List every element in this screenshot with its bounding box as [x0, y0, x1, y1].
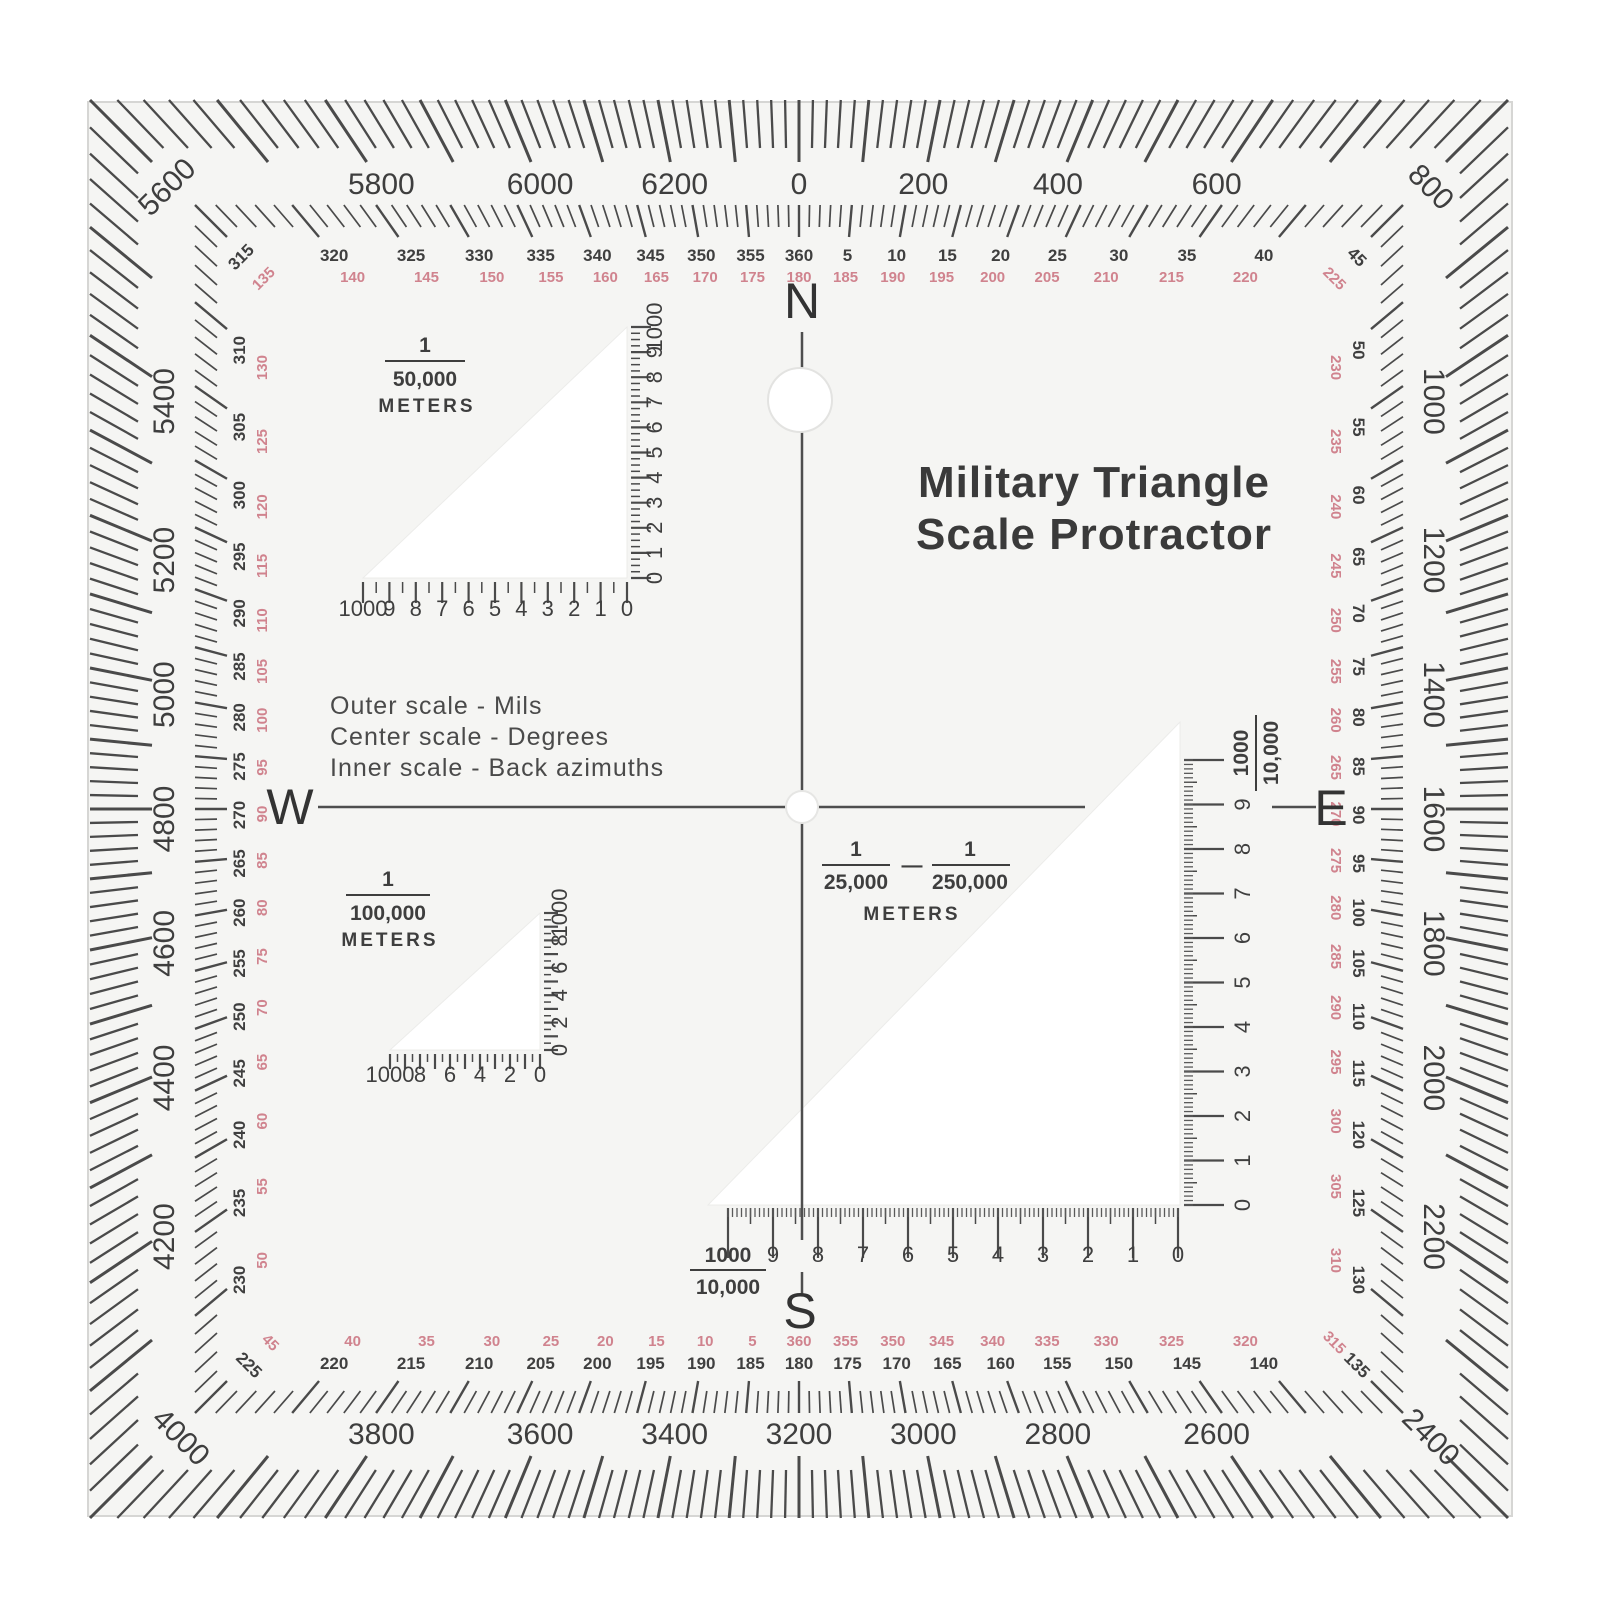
degree-value-label: 340: [583, 246, 611, 265]
degree-value-label: 50: [1349, 341, 1368, 360]
degree-value-label: 275: [230, 752, 249, 780]
svg-text:METERS: METERS: [863, 904, 960, 925]
legend-inner-scale: Inner scale - Back azimuths: [330, 754, 664, 782]
degree-value-label: 65: [1349, 547, 1368, 566]
ruler-value-label: 3: [1230, 1065, 1255, 1077]
degree-tick: [830, 1391, 831, 1413]
hanging-hole: [768, 368, 832, 432]
svg-text:1: 1: [964, 838, 976, 861]
ruler-value-label: 6: [902, 1242, 914, 1267]
ruler-value-label: 4: [547, 989, 572, 1001]
mils-tick: [812, 100, 813, 148]
back-azimuth-value-label: 205: [1035, 269, 1060, 286]
back-azimuth-value-label: 285: [1327, 944, 1344, 969]
mils-value-label: 1600: [1417, 786, 1450, 853]
degree-value-label: 230: [230, 1266, 249, 1294]
back-azimuth-value-label: 280: [1327, 895, 1344, 920]
back-azimuth-value-label: 165: [644, 269, 669, 286]
back-azimuth-value-label: 255: [1327, 659, 1344, 684]
degree-value-label: 95: [1349, 854, 1368, 873]
ruler-value-label: 9: [767, 1242, 779, 1267]
svg-text:METERS: METERS: [341, 930, 438, 951]
degree-value-label: 170: [882, 1354, 910, 1373]
back-azimuth-value-label: 195: [929, 269, 954, 286]
degree-value-label: 160: [986, 1354, 1014, 1373]
back-azimuth-value-label: 215: [1159, 269, 1184, 286]
fraction-separator: —: [902, 854, 923, 877]
back-azimuth-value-label: 25: [543, 1333, 560, 1350]
svg-text:1000: 1000: [1230, 730, 1253, 777]
back-azimuth-value-label: 60: [254, 1113, 271, 1130]
back-azimuth-value-label: 305: [1327, 1174, 1344, 1199]
protractor-product-photo: 0200400600800100012001400160018002000220…: [0, 0, 1600, 1600]
degree-value-label: 175: [833, 1354, 861, 1373]
ruler-value-label: 0: [1172, 1242, 1184, 1267]
degree-value-label: 40: [1254, 246, 1273, 265]
ruler-value-label: 9: [1230, 798, 1255, 810]
ruler-value-label: 7: [1230, 887, 1255, 899]
back-azimuth-value-label: 335: [1035, 1333, 1060, 1350]
mils-value-label: 5400: [148, 368, 181, 435]
degree-value-label: 245: [230, 1059, 249, 1087]
back-azimuth-value-label: 35: [418, 1333, 435, 1350]
ruler-value-label: 5: [489, 596, 501, 621]
ruler-value-label: 4: [642, 471, 667, 483]
degree-value-label: 270: [230, 801, 249, 829]
mils-value-label: 4600: [148, 910, 181, 977]
ruler-value-label: 2: [504, 1062, 516, 1087]
mils-value-label: 5000: [148, 661, 181, 728]
ruler-value-label: 1000: [642, 303, 667, 352]
mils-value-label: 4200: [148, 1203, 181, 1270]
degree-value-label: 15: [938, 246, 957, 265]
degree-value-label: 115: [1349, 1060, 1368, 1087]
back-azimuth-value-label: 155: [538, 269, 563, 286]
degree-tick: [195, 840, 217, 841]
ruler-value-label: 2: [547, 1016, 572, 1028]
mils-tick: [785, 100, 786, 148]
ruler-value-label: 1000: [366, 1062, 415, 1087]
mils-value-label: 1200: [1417, 527, 1450, 594]
back-azimuth-value-label: 210: [1094, 269, 1119, 286]
ruler-value-label: 7: [642, 396, 667, 408]
mils-value-label: 3800: [348, 1418, 415, 1451]
back-azimuth-value-label: 325: [1159, 1333, 1184, 1350]
svg-text:1: 1: [382, 868, 394, 891]
ruler-value-label: 4: [992, 1242, 1004, 1267]
ruler-value-label: 9: [383, 596, 395, 621]
mils-tick: [785, 1470, 786, 1518]
legend-outer-scale: Outer scale - Mils: [330, 692, 542, 720]
back-azimuth-value-label: 75: [254, 948, 271, 965]
back-azimuth-value-label: 250: [1327, 608, 1344, 633]
ruler-value-label: 2: [568, 596, 580, 621]
degree-value-label: 290: [230, 599, 249, 627]
degree-value-label: 100: [1349, 898, 1368, 926]
back-azimuth-value-label: 130: [254, 355, 271, 380]
back-azimuth-value-label: 105: [254, 659, 271, 684]
back-azimuth-value-label: 15: [648, 1333, 665, 1350]
mils-value-label: 600: [1192, 168, 1242, 201]
ruler-value-label: 0: [621, 596, 633, 621]
mils-value-label: 2200: [1417, 1203, 1450, 1270]
ruler-value-label: 1000: [547, 889, 572, 938]
back-azimuth-value-label: 100: [254, 708, 271, 733]
ruler-value-label: 0: [534, 1062, 546, 1087]
degree-tick: [195, 829, 217, 830]
degree-value-label: 5: [843, 246, 852, 265]
back-azimuth-value-label: 10: [697, 1333, 714, 1350]
back-azimuth-value-label: 310: [1327, 1248, 1344, 1273]
ruler-value-label: 8: [642, 371, 667, 383]
ruler-value-label: 1: [642, 547, 667, 559]
military-protractor: 0200400600800100012001400160018002000220…: [0, 0, 1600, 1600]
back-azimuth-value-label: 190: [880, 269, 905, 286]
back-azimuth-value-label: 200: [980, 269, 1005, 286]
degree-value-label: 280: [230, 703, 249, 731]
mils-tick: [90, 822, 138, 823]
back-azimuth-value-label: 85: [254, 852, 271, 869]
degree-tick: [767, 205, 768, 227]
mils-tick: [1460, 822, 1508, 823]
svg-text:10,000: 10,000: [1260, 721, 1283, 785]
mils-value-label: 0: [791, 168, 808, 201]
ruler-value-label: 1: [1230, 1154, 1255, 1166]
mils-tick: [1460, 795, 1508, 796]
ruler-value-label: 8: [414, 1062, 426, 1087]
degree-value-label: 355: [736, 246, 764, 265]
ruler-value-label: 2: [1230, 1110, 1255, 1122]
back-azimuth-value-label: 80: [254, 899, 271, 916]
ruler-value-label: 6: [1230, 932, 1255, 944]
west-label: W: [266, 779, 314, 835]
mils-value-label: 400: [1033, 168, 1083, 201]
ruler-value-label: 6: [547, 962, 572, 974]
ruler-value-label: 4: [1230, 1021, 1255, 1033]
ruler-value-label: 4: [515, 596, 527, 621]
south-label: S: [783, 1283, 816, 1339]
degree-tick: [1381, 777, 1403, 778]
back-azimuth-value-label: 175: [740, 269, 765, 286]
ruler-value-label: 4: [474, 1062, 486, 1087]
degree-value-label: 130: [1349, 1266, 1368, 1294]
degree-value-label: 90: [1349, 806, 1368, 825]
mils-value-label: 2000: [1417, 1045, 1450, 1112]
degree-tick: [1381, 788, 1403, 789]
back-azimuth-value-label: 290: [1327, 995, 1344, 1020]
north-label: N: [784, 273, 820, 329]
degree-value-label: 195: [636, 1354, 664, 1373]
ruler-value-label: 3: [642, 497, 667, 509]
back-azimuth-value-label: 330: [1094, 1333, 1119, 1350]
mils-value-label: 3400: [641, 1418, 708, 1451]
back-azimuth-value-label: 170: [693, 269, 718, 286]
degree-value-label: 35: [1177, 246, 1196, 265]
degree-value-label: 360: [785, 246, 813, 265]
back-azimuth-value-label: 95: [254, 759, 271, 776]
degree-tick: [1381, 829, 1403, 830]
mils-value-label: 1000: [1417, 368, 1450, 435]
degree-tick: [778, 205, 779, 227]
back-azimuth-value-label: 125: [254, 429, 271, 454]
mils-value-label: 4800: [148, 786, 181, 853]
degree-value-label: 165: [933, 1354, 961, 1373]
degree-value-label: 145: [1173, 1354, 1201, 1373]
back-azimuth-value-label: 355: [833, 1333, 858, 1350]
degree-value-label: 285: [230, 652, 249, 680]
back-azimuth-value-label: 120: [254, 494, 271, 519]
back-azimuth-value-label: 265: [1327, 755, 1344, 780]
back-azimuth-value-label: 20: [597, 1333, 614, 1350]
back-azimuth-value-label: 30: [484, 1333, 501, 1350]
degree-value-label: 255: [230, 949, 249, 977]
back-azimuth-value-label: 50: [254, 1252, 271, 1269]
degree-tick: [195, 788, 217, 789]
degree-tick: [819, 205, 820, 227]
degree-value-label: 55: [1349, 418, 1368, 437]
degree-value-label: 30: [1109, 246, 1128, 265]
ruler-value-label: 7: [857, 1242, 869, 1267]
degree-tick: [767, 1391, 768, 1413]
degree-value-label: 325: [397, 246, 425, 265]
degree-value-label: 155: [1043, 1354, 1071, 1373]
degree-value-label: 150: [1105, 1354, 1133, 1373]
back-azimuth-value-label: 140: [340, 269, 365, 286]
back-azimuth-value-label: 245: [1327, 553, 1344, 578]
back-azimuth-value-label: 230: [1327, 355, 1344, 380]
degree-value-label: 240: [230, 1121, 249, 1149]
legend-center-scale: Center scale - Degrees: [330, 723, 609, 751]
degree-value-label: 85: [1349, 757, 1368, 776]
ruler-value-label: 2: [1082, 1242, 1094, 1267]
back-azimuth-value-label: 300: [1327, 1109, 1344, 1134]
degree-value-label: 105: [1349, 949, 1368, 977]
ruler-value-label: 2: [642, 522, 667, 534]
east-label: E: [1314, 780, 1347, 836]
degree-value-label: 125: [1349, 1189, 1368, 1217]
back-azimuth-value-label: 160: [593, 269, 618, 286]
mils-value-label: 1400: [1417, 661, 1450, 728]
degree-value-label: 140: [1250, 1354, 1278, 1373]
degree-value-label: 80: [1349, 708, 1368, 727]
back-azimuth-value-label: 115: [254, 554, 271, 578]
degree-value-label: 305: [230, 413, 249, 441]
back-azimuth-value-label: 260: [1327, 708, 1344, 733]
ruler-value-label: 1: [594, 596, 606, 621]
degree-value-label: 345: [636, 246, 664, 265]
back-azimuth-value-label: 65: [254, 1054, 271, 1071]
degree-value-label: 75: [1349, 657, 1368, 676]
mils-value-label: 6200: [641, 168, 708, 201]
degree-value-label: 205: [526, 1354, 554, 1373]
degree-value-label: 250: [230, 1002, 249, 1030]
ruler-value-label: 3: [1037, 1242, 1049, 1267]
degree-value-label: 180: [785, 1354, 813, 1373]
degree-value-label: 215: [397, 1354, 425, 1373]
svg-text:1: 1: [850, 838, 862, 861]
degree-value-label: 70: [1349, 604, 1368, 623]
degree-tick: [1381, 840, 1403, 841]
degree-value-label: 320: [320, 246, 348, 265]
ruler-value-label: 8: [812, 1242, 824, 1267]
back-azimuth-value-label: 145: [414, 269, 439, 286]
ruler-value-label: 5: [947, 1242, 959, 1267]
back-azimuth-value-label: 150: [479, 269, 504, 286]
back-azimuth-value-label: 275: [1327, 848, 1344, 873]
degree-value-label: 10: [887, 246, 906, 265]
degree-value-label: 210: [465, 1354, 493, 1373]
mils-value-label: 4400: [148, 1045, 181, 1112]
ruler-value-label: 6: [462, 596, 474, 621]
degree-value-label: 110: [1349, 1003, 1368, 1030]
ruler-value-label: 1000: [339, 596, 388, 621]
back-azimuth-value-label: 340: [980, 1333, 1005, 1350]
degree-value-label: 120: [1349, 1121, 1368, 1149]
degree-value-label: 190: [687, 1354, 715, 1373]
mils-value-label: 3600: [507, 1418, 574, 1451]
degree-value-label: 310: [230, 336, 249, 364]
ruler-value-label: 6: [642, 421, 667, 433]
back-azimuth-value-label: 5: [748, 1333, 756, 1350]
mils-tick: [90, 795, 138, 796]
ruler-value-label: 0: [642, 572, 667, 584]
svg-text:25,000: 25,000: [824, 871, 888, 894]
back-azimuth-value-label: 55: [254, 1178, 271, 1195]
back-azimuth-value-label: 350: [880, 1333, 905, 1350]
ruler-value-label: 0: [1230, 1199, 1255, 1211]
degree-value-label: 335: [526, 246, 554, 265]
ruler-value-label: 1: [1127, 1242, 1139, 1267]
back-azimuth-value-label: 240: [1327, 494, 1344, 519]
back-azimuth-value-label: 185: [833, 269, 858, 286]
degree-value-label: 220: [320, 1354, 348, 1373]
mils-value-label: 5200: [148, 527, 181, 594]
mils-value-label: 1800: [1417, 910, 1450, 977]
ruler-value-label: 5: [642, 446, 667, 458]
mils-value-label: 3000: [890, 1418, 957, 1451]
back-azimuth-value-label: 70: [254, 999, 271, 1016]
degree-value-label: 185: [736, 1354, 764, 1373]
back-azimuth-value-label: 320: [1233, 1333, 1258, 1350]
mils-value-label: 2600: [1183, 1418, 1250, 1451]
ruler-value-label: 8: [1230, 843, 1255, 855]
mils-value-label: 200: [898, 168, 948, 201]
ruler-value-label: 3: [542, 596, 554, 621]
degree-tick: [778, 1391, 779, 1413]
ruler-value-label: 6: [444, 1062, 456, 1087]
ruler-value-label: 7: [436, 596, 448, 621]
ruler-value-label: 0: [547, 1044, 572, 1056]
svg-text:250,000: 250,000: [932, 871, 1008, 894]
degree-tick: [830, 205, 831, 227]
degree-value-label: 25: [1048, 246, 1067, 265]
back-azimuth-value-label: 220: [1233, 269, 1258, 286]
product-title-line1: Military Triangle: [918, 458, 1270, 507]
center-hole: [786, 791, 818, 823]
ruler-value-label: 8: [410, 596, 422, 621]
back-azimuth-value-label: 235: [1327, 429, 1344, 454]
degree-value-label: 295: [230, 542, 249, 570]
svg-text:10,000: 10,000: [696, 1276, 760, 1299]
svg-text:1: 1: [419, 334, 431, 357]
degree-value-label: 260: [230, 898, 249, 926]
degree-value-label: 265: [230, 849, 249, 877]
back-azimuth-value-label: 40: [344, 1333, 361, 1350]
degree-value-label: 200: [583, 1354, 611, 1373]
degree-tick: [195, 777, 217, 778]
back-azimuth-value-label: 345: [929, 1333, 954, 1350]
ruler-value-label: 5: [1230, 976, 1255, 988]
degree-value-label: 20: [991, 246, 1010, 265]
svg-text:METERS: METERS: [378, 396, 475, 417]
svg-text:50,000: 50,000: [393, 368, 457, 391]
mils-value-label: 5800: [348, 168, 415, 201]
degree-value-label: 330: [465, 246, 493, 265]
degree-value-label: 300: [230, 481, 249, 509]
mils-value-label: 3200: [766, 1418, 833, 1451]
back-azimuth-value-label: 110: [254, 608, 271, 632]
degree-value-label: 235: [230, 1189, 249, 1217]
back-azimuth-value-label: 295: [1327, 1050, 1344, 1075]
mils-value-label: 6000: [507, 168, 574, 201]
degree-tick: [819, 1391, 820, 1413]
degree-value-label: 60: [1349, 486, 1368, 505]
product-title-line2: Scale Protractor: [916, 510, 1272, 559]
svg-text:100,000: 100,000: [350, 902, 426, 925]
mils-tick: [812, 1470, 813, 1518]
mils-value-label: 2800: [1025, 1418, 1092, 1451]
degree-value-label: 350: [687, 246, 715, 265]
